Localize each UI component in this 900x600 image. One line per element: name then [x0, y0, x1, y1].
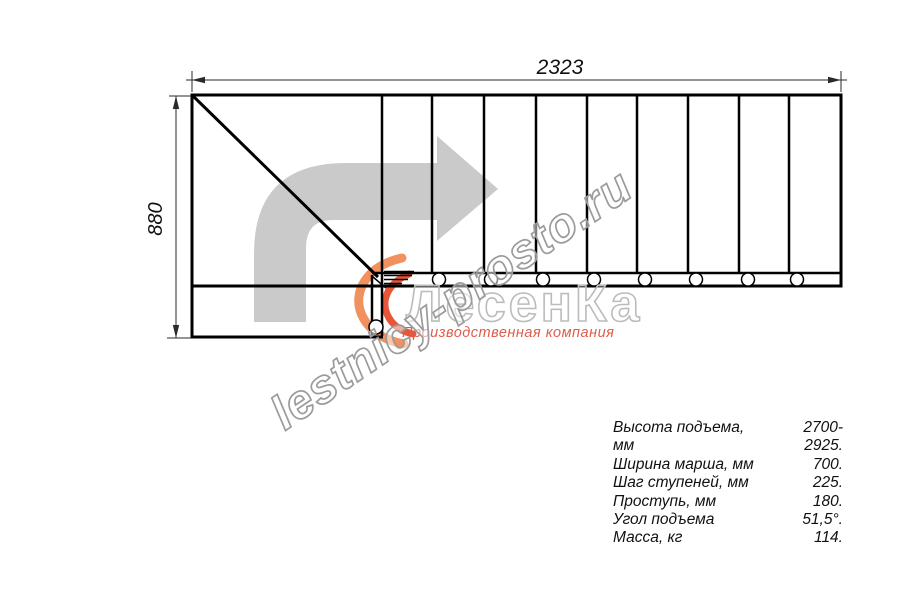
spec-label: Высота подъема, мм: [613, 419, 766, 456]
spec-value: 700.: [813, 456, 843, 474]
spec-value: 51,5°.: [802, 511, 843, 529]
dimension-height: [167, 96, 191, 338]
spec-label: Угол подъема: [613, 511, 714, 529]
stair-drawing-page: 2323 880 ЛесенКа Производственная компан…: [0, 0, 900, 600]
spec-row-flight-width: Ширина марша, мм 700.: [613, 456, 843, 474]
baluster-circle: [690, 273, 703, 286]
spec-row-mass: Масса, кг 114.: [613, 529, 843, 547]
logo-tagline: Производственная компания: [402, 325, 614, 341]
baluster-circle: [791, 273, 804, 286]
spec-value: 114.: [814, 529, 843, 547]
spec-row-tread-depth: Проступь, мм 180.: [613, 493, 843, 511]
baluster-circle: [742, 273, 755, 286]
dimension-width: [186, 71, 847, 92]
spec-row-climb-angle: Угол подъема 51,5°.: [613, 511, 843, 529]
spec-label: Масса, кг: [613, 529, 682, 547]
spec-label: Ширина марша, мм: [613, 456, 754, 474]
spec-value: 180.: [813, 493, 843, 511]
spec-value: 225.: [813, 474, 843, 492]
spec-label: Шаг ступеней, мм: [613, 474, 749, 492]
spec-row-height: Высота подъема, мм 2700-2925.: [613, 419, 843, 456]
spec-row-step-pitch: Шаг ступеней, мм 225.: [613, 474, 843, 492]
spec-table: Высота подъема, мм 2700-2925. Ширина мар…: [613, 419, 843, 548]
spec-value: 2700-2925.: [766, 419, 843, 456]
dimension-height-label: 880: [145, 202, 167, 235]
dimension-width-label: 2323: [536, 56, 584, 79]
baluster-circle-corner: [369, 320, 383, 334]
spec-label: Проступь, мм: [613, 493, 716, 511]
